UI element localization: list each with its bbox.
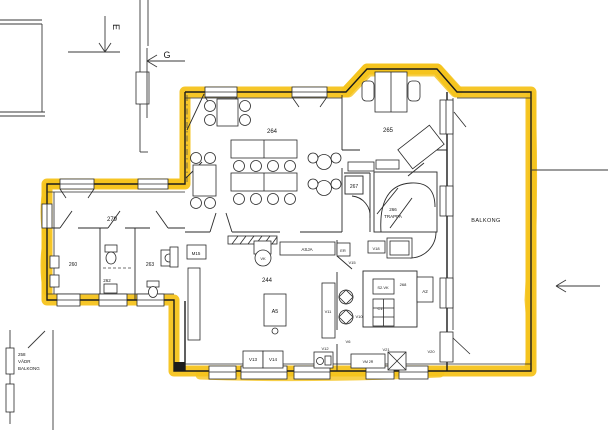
neighbor-building-bottom-left — [6, 330, 53, 430]
neighbor-window — [6, 348, 14, 374]
wc-262 — [104, 245, 117, 293]
door-swing-line — [156, 211, 168, 228]
balcony-door — [440, 332, 470, 362]
shaft — [388, 352, 406, 370]
label-268: 268 — [400, 282, 407, 287]
wc-263 — [147, 247, 178, 298]
round-table — [317, 181, 332, 196]
c1-grid-unit — [373, 299, 394, 326]
window — [209, 366, 236, 379]
table — [217, 99, 238, 126]
equipment-labels: M15 VK ASJA ER V15 A5 V11 V10 V6 V12 V18… — [192, 246, 436, 364]
label-vk: VK — [260, 256, 266, 261]
label-room-262: 262 — [103, 278, 111, 283]
window — [138, 179, 168, 189]
floor-plan-page: E G — [0, 0, 608, 436]
label-room-264: 264 — [267, 129, 278, 135]
window — [292, 87, 327, 107]
label-neighbor-1: 258 — [18, 352, 26, 357]
label-v11: V11 — [325, 309, 333, 314]
perimeter-highlight — [45, 69, 533, 377]
label-room-260: 260 — [69, 262, 78, 268]
window — [42, 204, 52, 228]
floor-plan-drawing: E G — [0, 0, 608, 436]
label-room-265: 265 — [383, 128, 394, 134]
door-swing-line — [60, 211, 72, 228]
section-marker-g: G — [147, 48, 185, 118]
label-kitchen-244: 244 — [262, 278, 273, 284]
sink-unit — [314, 352, 333, 368]
label-vm: VM 2R — [363, 360, 374, 364]
direction-arrow — [556, 280, 600, 292]
label-balcony: BALKONG — [471, 218, 500, 224]
neighbor-building-top-left — [0, 0, 149, 152]
piano — [398, 125, 444, 169]
section-marker-e: E — [68, 16, 121, 52]
label-stair-name: TRAPPA — [384, 214, 402, 219]
exterior-walls — [47, 69, 531, 371]
door-swing-line — [226, 213, 232, 232]
label-neighbor-2: VÄDR — [18, 358, 31, 364]
label-v6: V6 — [346, 339, 352, 344]
window — [60, 179, 94, 198]
label-v21: V21 — [382, 347, 390, 352]
label-v12: V12 — [321, 346, 329, 351]
door-swing-line — [210, 213, 216, 232]
door-arc — [410, 232, 436, 258]
window — [440, 100, 466, 134]
label-er: ER — [340, 248, 346, 253]
label-v10: V10 — [355, 314, 363, 319]
service-room-units — [351, 238, 433, 370]
window — [440, 278, 453, 308]
label-neighbor-3: BALKONG — [18, 366, 40, 371]
label-room-267: 267 — [350, 184, 359, 190]
marker-g-label: G — [163, 50, 170, 60]
label-stair-number: 266 — [389, 207, 397, 212]
label-c1: C1 — [377, 306, 383, 311]
bay-window-table — [362, 72, 420, 112]
label-a2: A2 — [422, 289, 428, 294]
label-v13: V13 — [249, 357, 258, 362]
table — [193, 165, 216, 196]
window — [99, 294, 127, 306]
door-swing-line — [28, 331, 45, 348]
label-room-263: 263 — [146, 262, 155, 268]
neighbor-window — [6, 384, 14, 412]
marker-e-label: E — [111, 24, 121, 30]
staircase-266 — [374, 163, 437, 232]
label-s2vk: S2.VK — [377, 285, 389, 290]
room265-furniture — [345, 125, 444, 194]
kitchen-equipment — [187, 236, 433, 370]
window — [440, 186, 453, 216]
balcony — [531, 170, 608, 292]
window — [57, 294, 80, 306]
label-v14: V14 — [269, 357, 278, 362]
label-m15: M15 — [192, 251, 201, 256]
label-a5: A5 — [272, 309, 279, 315]
label-v20: V20 — [427, 349, 435, 354]
label-v18: V18 — [372, 246, 380, 251]
door-arc — [352, 196, 370, 218]
label-corridor-279: 279 — [107, 217, 118, 223]
wall-poche — [174, 362, 185, 371]
wing-fixtures — [50, 245, 178, 298]
label-asja: ASJA — [301, 247, 312, 252]
interior-partitions — [47, 94, 447, 371]
label-v15: V15 — [348, 260, 356, 265]
windows — [42, 87, 470, 379]
tall-cabinet — [188, 268, 200, 340]
round-table — [317, 155, 332, 170]
